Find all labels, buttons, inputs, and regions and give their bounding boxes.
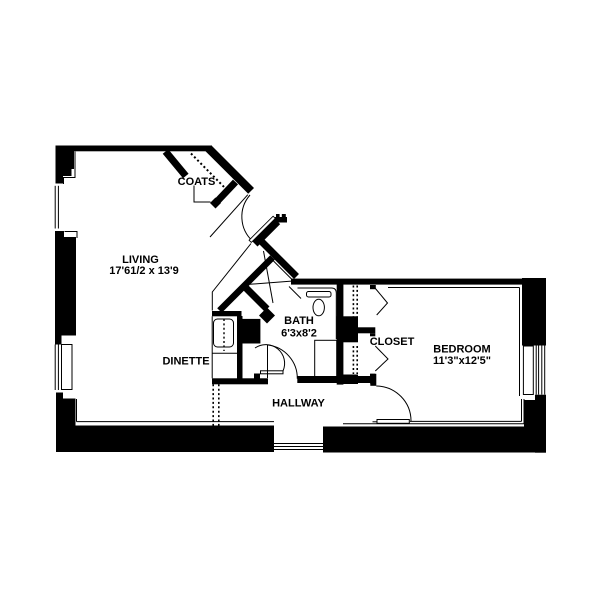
svg-text:CLOSET: CLOSET [370,336,415,348]
svg-text:HALLWAY: HALLWAY [272,398,325,410]
svg-text:6'3x8'2: 6'3x8'2 [281,328,317,340]
svg-text:17'61/2 x 13'9: 17'61/2 x 13'9 [109,265,178,277]
svg-text:DINETTE: DINETTE [162,356,209,368]
svg-text:11'3"x12'5": 11'3"x12'5" [433,355,491,367]
svg-text:BATH: BATH [284,315,314,327]
svg-text:BEDROOM: BEDROOM [433,344,490,356]
